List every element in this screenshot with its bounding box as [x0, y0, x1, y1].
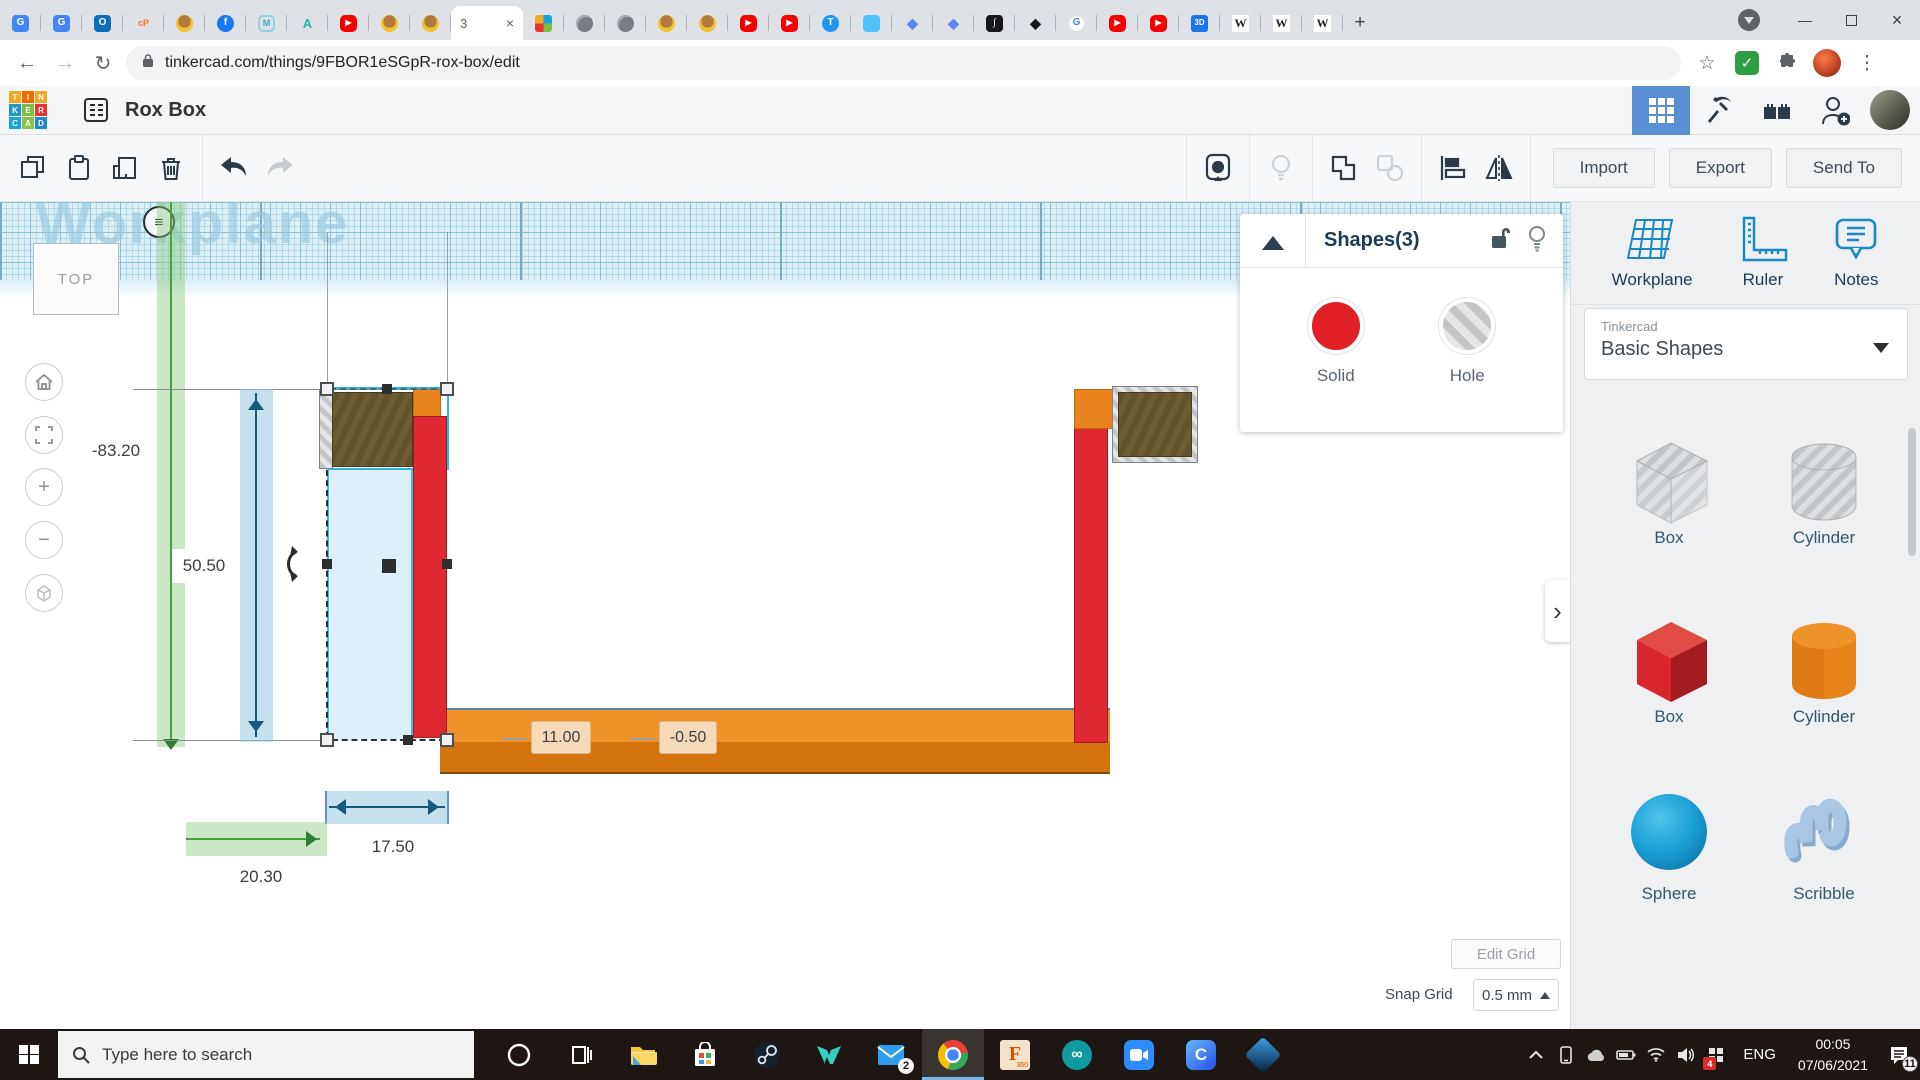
dim-selection-width[interactable]: 17.50	[363, 830, 423, 863]
cortana-icon[interactable]	[488, 1029, 550, 1080]
search-icon	[72, 1046, 90, 1064]
tray-badge-count: 4	[1703, 1057, 1716, 1070]
editor-toolbar: Import Export Send To	[0, 135, 1920, 202]
tab-favicon: W	[1314, 15, 1331, 32]
align-icon[interactable]	[1430, 145, 1476, 191]
browser-tab[interactable]: T	[810, 6, 851, 40]
browser-tab[interactable]	[369, 6, 410, 40]
clipchamp-icon[interactable]: C	[1170, 1029, 1232, 1080]
shape-label: Sphere	[1609, 884, 1729, 904]
notification-center-icon[interactable]: 11	[1878, 1029, 1920, 1080]
microsoft-store-icon[interactable]	[674, 1029, 736, 1080]
tab-favicon: ▶	[340, 15, 357, 32]
tab-favicon: O	[94, 15, 111, 32]
lock-icon	[142, 53, 154, 73]
resize-handle-top[interactable]	[382, 384, 392, 394]
shape-scribble[interactable]	[1778, 786, 1870, 878]
browser-tab[interactable]: ◆	[1015, 6, 1056, 40]
dashboard-grid-button[interactable]	[1632, 86, 1690, 135]
snap-grid-dropdown[interactable]: 0.5 mm	[1473, 979, 1559, 1011]
close-window-button[interactable]: ×	[1874, 0, 1920, 40]
shape-cylinder-solid[interactable]	[1778, 614, 1870, 706]
browser-tab[interactable]: G	[0, 6, 41, 40]
design-title: Rox Box	[125, 99, 206, 122]
solid-option[interactable]: Solid	[1308, 298, 1364, 386]
tab-favicon: ▶	[781, 15, 798, 32]
dim-height[interactable]: 50.50	[172, 549, 236, 583]
address-bar[interactable]: tinkercad.com/things/9FBOR1eSGpR-rox-box…	[126, 46, 1681, 80]
browser-tab[interactable]: M	[246, 6, 287, 40]
new-tab-button[interactable]: +	[1343, 6, 1377, 40]
tab-favicon	[422, 15, 439, 32]
minecraft-pickaxe-icon[interactable]	[1690, 86, 1748, 135]
browser-tab[interactable]: ◆	[933, 6, 974, 40]
rotate-handle-icon[interactable]	[278, 544, 304, 589]
search-input[interactable]	[102, 1045, 432, 1065]
edit-grid-button[interactable]: Edit Grid	[1451, 939, 1561, 969]
bulb-visibility-icon[interactable]	[1527, 225, 1547, 257]
battery-icon[interactable]	[1611, 1029, 1641, 1080]
blue-height-band-vertical	[240, 389, 273, 742]
red-box-left[interactable]	[413, 416, 447, 738]
hole-label: Hole	[1450, 366, 1485, 386]
maximize-button[interactable]	[1828, 0, 1874, 40]
screen: G G O cP f	[0, 0, 1920, 1080]
copy-icon[interactable]	[10, 145, 56, 191]
notification-badge: 11	[1902, 1056, 1918, 1072]
tab-favicon: f	[217, 15, 234, 32]
arduino-icon[interactable]: ∞	[1046, 1029, 1108, 1080]
shape-cylinder-hole[interactable]	[1778, 435, 1870, 527]
tinkercad-logo[interactable]: TIN KER CAD	[9, 91, 47, 129]
volume-icon[interactable]	[1671, 1029, 1701, 1080]
browser-tab[interactable]: G	[41, 6, 82, 40]
wifi-icon[interactable]	[1641, 1029, 1671, 1080]
ungroup-icon-disabled	[1367, 145, 1413, 191]
msi-dragon-icon[interactable]	[1232, 1029, 1294, 1080]
shape-label: Cylinder	[1764, 707, 1884, 727]
browser-tab[interactable]: A	[287, 6, 328, 40]
resize-handle-bottom-left[interactable]	[320, 733, 334, 747]
task-view-icon[interactable]	[550, 1029, 612, 1080]
add-user-icon[interactable]	[1806, 86, 1864, 135]
windows-taskbar: 2 F 360 ∞ C	[0, 1029, 1920, 1080]
browser-tab[interactable]	[851, 6, 892, 40]
brown-box-right[interactable]	[1112, 386, 1198, 463]
browser-tab[interactable]: f	[205, 6, 246, 40]
tab-favicon: 3D	[1191, 15, 1208, 32]
import-button[interactable]: Import	[1553, 148, 1655, 188]
delete-icon[interactable]	[148, 145, 194, 191]
browser-toolbar: ← → ↻ tinkercad.com/things/9FBOR1eSGpR-r…	[0, 40, 1920, 86]
toolbar-right: Import Export Send To	[1178, 135, 1920, 202]
browser-tab[interactable]: ◆	[892, 6, 933, 40]
hole-option[interactable]: Hole	[1439, 298, 1495, 386]
design-properties-icon[interactable]	[83, 97, 109, 123]
hole-shape-selected[interactable]	[327, 468, 413, 740]
lego-bricks-icon[interactable]	[1748, 86, 1806, 135]
browser-tab[interactable]	[164, 6, 205, 40]
tab-favicon	[863, 15, 880, 32]
paste-icon[interactable]	[56, 145, 102, 191]
sidebar-collapse-chevron[interactable]: ›	[1545, 580, 1570, 642]
url-text: tinkercad.com/things/9FBOR1eSGpR-rox-box…	[165, 54, 520, 72]
clock-date: 07/06/2021	[1798, 1055, 1868, 1076]
resize-handle-left[interactable]	[322, 559, 332, 569]
clock-time: 00:05	[1798, 1034, 1868, 1055]
green-offset-band-vertical	[157, 202, 185, 747]
tab-favicon: cP	[135, 15, 152, 32]
unlock-icon[interactable]	[1489, 225, 1511, 256]
resize-handle-bottom[interactable]	[403, 735, 413, 745]
system-tray: 4 ENG 00:05 07/06/2021 11	[1521, 1029, 1920, 1080]
tab-favicon: M	[258, 15, 275, 32]
dim-width-a[interactable]: 11.00	[531, 721, 591, 754]
tab-favicon: ∫	[986, 15, 1003, 32]
mail-badge: 2	[898, 1058, 914, 1074]
zoom-out-button[interactable]: −	[25, 521, 63, 559]
bulb-icon-disabled	[1258, 145, 1304, 191]
shape-label: Scribble	[1764, 884, 1884, 904]
header-right-actions	[1632, 86, 1920, 135]
browser-tab[interactable]	[605, 6, 646, 40]
tab-favicon: ▶	[740, 15, 757, 32]
onedrive-cloud-icon[interactable]	[1581, 1029, 1611, 1080]
ruler-label: Ruler	[1743, 270, 1784, 290]
browser-tab[interactable]: W	[1302, 6, 1343, 40]
sidebar-scrollbar[interactable]	[1908, 428, 1916, 788]
duplicate-icon[interactable]	[102, 145, 148, 191]
perspective-toggle-button[interactable]	[25, 574, 63, 612]
tab-favicon: ◆	[904, 15, 921, 32]
move-handle-center[interactable]	[382, 559, 396, 573]
minimize-button[interactable]: —	[1782, 0, 1828, 40]
extensions-puzzle-icon[interactable]	[1767, 43, 1807, 83]
browser-tab[interactable]	[564, 6, 605, 40]
zoom-in-button[interactable]: +	[25, 468, 63, 506]
tray-expand-icon[interactable]	[1521, 1029, 1551, 1080]
user-avatar[interactable]	[1870, 90, 1910, 130]
browser-tab[interactable]	[523, 6, 564, 40]
fit-view-button[interactable]	[25, 416, 63, 454]
file-explorer-icon[interactable]	[612, 1029, 674, 1080]
taskbar-clock[interactable]: 00:05 07/06/2021	[1788, 1034, 1878, 1076]
language-indicator[interactable]: ENG	[1731, 1046, 1788, 1063]
tab-favicon: W	[1273, 15, 1290, 32]
browser-tab[interactable]	[646, 6, 687, 40]
tab-favicon	[699, 15, 716, 32]
browser-tab[interactable]: ▶	[769, 6, 810, 40]
tab-favicon	[535, 15, 552, 32]
active-tab-title: 3	[460, 16, 467, 31]
tab-favicon: ▶	[1109, 15, 1126, 32]
dim-width-b[interactable]: -0.50	[659, 721, 717, 754]
chevron-down-icon	[1873, 343, 1889, 361]
tab-favicon: ◆	[1027, 15, 1044, 32]
tab-favicon	[381, 15, 398, 32]
resize-handle-right[interactable]	[442, 559, 452, 569]
bookmark-star-icon[interactable]: ☆	[1687, 43, 1727, 83]
notes-label: Notes	[1834, 270, 1878, 290]
dim-offset-x[interactable]: 20.30	[229, 860, 293, 893]
tinkercad-header: TIN KER CAD Rox Box	[0, 86, 1920, 135]
panel-collapse-button[interactable]	[1240, 214, 1306, 268]
active-tab-tinkercad[interactable]: 3 ×	[451, 6, 523, 40]
redo-icon[interactable]	[257, 145, 303, 191]
browser-tab[interactable]: G	[1056, 6, 1097, 40]
chrome-taskbar-icon[interactable]	[922, 1029, 984, 1080]
steam-icon[interactable]	[736, 1029, 798, 1080]
hole-swatch-circle[interactable]	[1439, 298, 1495, 354]
browser-tab[interactable]: W	[1220, 6, 1261, 40]
shape-sphere[interactable]	[1623, 786, 1715, 878]
shape-label: Box	[1609, 528, 1729, 548]
ruler-tool[interactable]: Ruler	[1738, 216, 1788, 290]
tab-favicon: ▶	[1150, 15, 1167, 32]
hole-overlap-left	[319, 390, 333, 469]
view-cube-top[interactable]: TOP	[33, 243, 119, 315]
browser-tab[interactable]: ∫	[974, 6, 1015, 40]
browser-profile-avatar[interactable]	[1807, 43, 1847, 83]
snap-grid-label: Snap Grid	[1385, 986, 1453, 1003]
start-button[interactable]	[0, 1029, 58, 1080]
browser-tab[interactable]: cP	[123, 6, 164, 40]
browser-tab[interactable]: 3D	[1179, 6, 1220, 40]
send-to-button[interactable]: Send To	[1786, 148, 1902, 188]
mail-icon[interactable]: 2	[860, 1029, 922, 1080]
adblock-extension-icon[interactable]: ✓	[1727, 43, 1767, 83]
browser-tab[interactable]: ▶	[1097, 6, 1138, 40]
tab-favicon: G	[53, 15, 70, 32]
mirror-icon[interactable]	[1476, 145, 1522, 191]
close-tab-icon[interactable]: ×	[506, 15, 514, 31]
orange-box-top-right[interactable]	[1074, 389, 1114, 429]
browser-menu-icon[interactable]: ⋮	[1847, 43, 1887, 83]
tab-favicon	[176, 15, 193, 32]
workplane-label: Workplane	[1612, 270, 1693, 290]
green-offset-band-horizontal	[186, 822, 327, 856]
browser-tab-strip: G G O cP f	[0, 0, 1920, 40]
tab-favicon	[617, 15, 634, 32]
tab-favicon: A	[299, 15, 316, 32]
blue-width-band-horizontal	[325, 791, 449, 824]
brown-box-left[interactable]	[332, 392, 413, 467]
shape-box-hole[interactable]	[1623, 435, 1715, 527]
shape-box-solid[interactable]	[1623, 614, 1715, 706]
reload-button[interactable]: ↻	[84, 44, 122, 82]
browser-tab[interactable]: O	[82, 6, 123, 40]
tab-favicon: T	[822, 15, 839, 32]
tab-search-icon[interactable]	[1738, 9, 1760, 31]
workplane-tool[interactable]: Workplane	[1612, 216, 1693, 290]
tab-favicon: G	[1068, 15, 1085, 32]
dim-offset-y[interactable]: -83.20	[83, 435, 149, 467]
shape-library-dropdown[interactable]: Tinkercad Basic Shapes	[1584, 308, 1908, 380]
show-all-icon[interactable]	[1195, 145, 1241, 191]
red-box-right[interactable]	[1074, 427, 1108, 743]
library-brand: Tinkercad	[1601, 319, 1891, 334]
resize-handle-top-left[interactable]	[320, 382, 334, 396]
fusion360-icon[interactable]: F 360	[984, 1029, 1046, 1080]
tray-app-badge-icon[interactable]: 4	[1701, 1029, 1731, 1080]
back-button[interactable]: ←	[8, 44, 46, 82]
tab-favicon	[658, 15, 675, 32]
your-phone-icon[interactable]	[1551, 1029, 1581, 1080]
home-view-button[interactable]	[25, 363, 63, 401]
shapes-inspector-panel: Shapes(3) Solid Hole	[1240, 214, 1563, 432]
browser-tab[interactable]: W	[1261, 6, 1302, 40]
browser-tab[interactable]: ▶	[1138, 6, 1179, 40]
shape-label: Cylinder	[1764, 528, 1884, 548]
browser-tab[interactable]	[687, 6, 728, 40]
predator-icon[interactable]	[798, 1029, 860, 1080]
orange-box-top-left[interactable]	[413, 389, 441, 417]
browser-tab[interactable]	[410, 6, 451, 40]
library-name: Basic Shapes	[1601, 338, 1891, 361]
browser-tab[interactable]: ▶	[328, 6, 369, 40]
shape-label: Box	[1609, 707, 1729, 727]
zoom-icon[interactable]	[1108, 1029, 1170, 1080]
shapes-sidebar: Workplane Ruler Notes Tinkercad Basic Sh…	[1570, 202, 1920, 1029]
window-controls: — ×	[1738, 0, 1920, 40]
tab-favicon	[576, 15, 593, 32]
group-icon[interactable]	[1321, 145, 1367, 191]
notes-tool[interactable]: Notes	[1833, 216, 1879, 290]
taskbar-search[interactable]	[58, 1031, 474, 1078]
shapes-panel-title: Shapes(3)	[1324, 229, 1420, 252]
solid-label: Solid	[1317, 366, 1355, 386]
tab-favicon: W	[1232, 15, 1249, 32]
export-button[interactable]: Export	[1669, 148, 1772, 188]
resize-handle-bottom-right[interactable]	[440, 733, 454, 747]
forward-button[interactable]: →	[46, 44, 84, 82]
tab-favicon: G	[12, 15, 29, 32]
solid-swatch-circle[interactable]	[1308, 298, 1364, 354]
tab-favicon: ◆	[945, 15, 962, 32]
undo-icon[interactable]	[211, 145, 257, 191]
resize-handle-top-right[interactable]	[440, 382, 454, 396]
browser-tab[interactable]: ▶	[728, 6, 769, 40]
